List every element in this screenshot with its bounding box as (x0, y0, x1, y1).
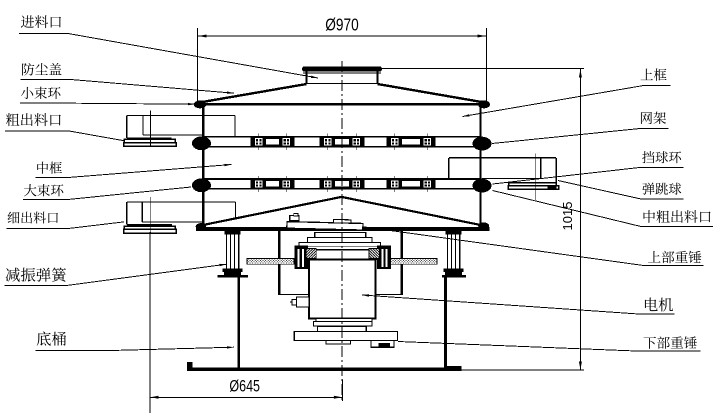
svg-text:1015: 1015 (560, 202, 575, 231)
svg-text:Ø970: Ø970 (325, 16, 359, 35)
svg-text:Ø645: Ø645 (229, 378, 260, 396)
